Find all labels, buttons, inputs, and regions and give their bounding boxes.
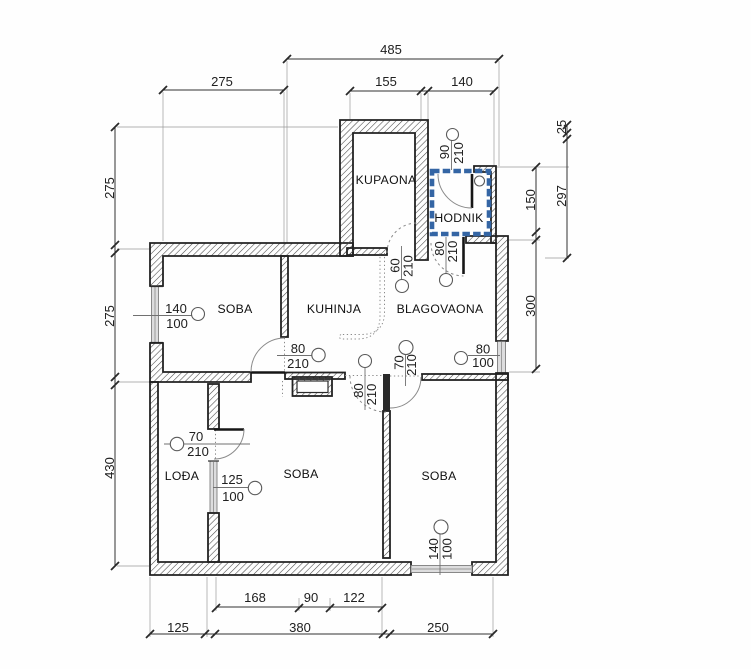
svg-text:70: 70 bbox=[189, 429, 203, 444]
svg-text:SOBA: SOBA bbox=[421, 469, 457, 483]
svg-text:155: 155 bbox=[375, 74, 397, 89]
svg-text:125: 125 bbox=[167, 620, 189, 635]
svg-text:210: 210 bbox=[401, 255, 416, 277]
svg-text:KUPAONA: KUPAONA bbox=[356, 173, 417, 187]
svg-text:90: 90 bbox=[437, 145, 452, 159]
svg-text:275: 275 bbox=[102, 305, 117, 327]
svg-text:SOBA: SOBA bbox=[217, 302, 253, 316]
svg-text:KUHINJA: KUHINJA bbox=[307, 302, 362, 316]
svg-text:250: 250 bbox=[427, 620, 449, 635]
svg-text:100: 100 bbox=[440, 538, 455, 560]
svg-text:210: 210 bbox=[187, 444, 209, 459]
svg-text:90: 90 bbox=[304, 590, 318, 605]
svg-text:SOBA: SOBA bbox=[283, 467, 319, 481]
svg-text:210: 210 bbox=[451, 142, 466, 164]
svg-text:210: 210 bbox=[287, 356, 309, 371]
svg-text:210: 210 bbox=[364, 384, 379, 406]
svg-text:275: 275 bbox=[102, 177, 117, 199]
svg-text:100: 100 bbox=[222, 489, 244, 504]
svg-text:125: 125 bbox=[221, 472, 243, 487]
svg-text:275: 275 bbox=[211, 74, 233, 89]
svg-text:297: 297 bbox=[554, 185, 569, 207]
svg-text:25: 25 bbox=[554, 120, 569, 134]
svg-text:168: 168 bbox=[244, 590, 266, 605]
svg-text:380: 380 bbox=[289, 620, 311, 635]
svg-text:LOĐA: LOĐA bbox=[165, 469, 200, 483]
svg-text:210: 210 bbox=[404, 354, 419, 376]
svg-text:140: 140 bbox=[451, 74, 473, 89]
svg-text:300: 300 bbox=[523, 295, 538, 317]
svg-text:100: 100 bbox=[166, 316, 188, 331]
svg-text:140: 140 bbox=[165, 301, 187, 316]
svg-text:122: 122 bbox=[343, 590, 365, 605]
svg-text:485: 485 bbox=[380, 42, 402, 57]
svg-text:100: 100 bbox=[472, 355, 494, 370]
svg-text:150: 150 bbox=[523, 189, 538, 211]
svg-text:BLAGOVAONA: BLAGOVAONA bbox=[397, 302, 484, 316]
svg-text:430: 430 bbox=[102, 457, 117, 479]
svg-text:HODNIK: HODNIK bbox=[434, 211, 483, 225]
svg-text:80: 80 bbox=[291, 341, 305, 356]
svg-text:210: 210 bbox=[445, 241, 460, 263]
